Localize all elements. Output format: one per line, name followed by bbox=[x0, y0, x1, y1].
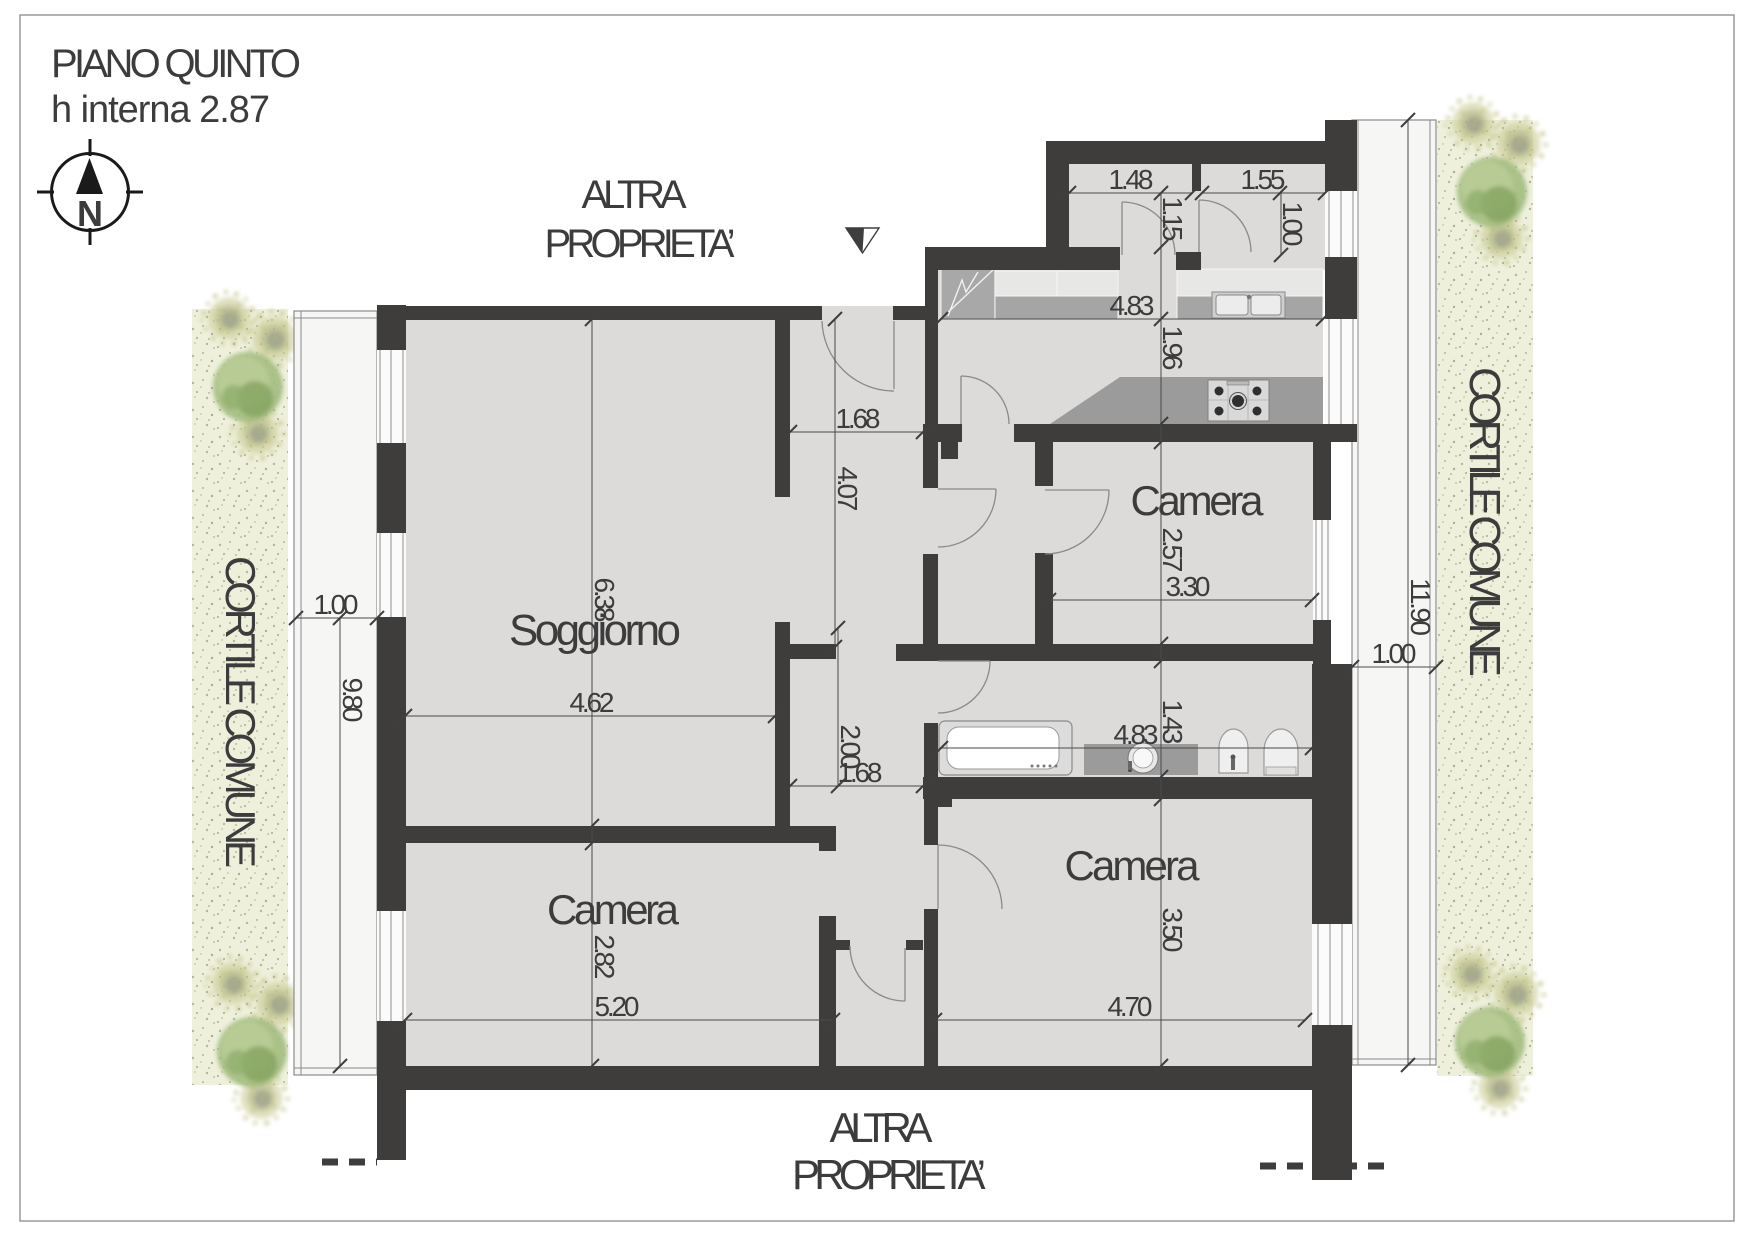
svg-text:4.62: 4.62 bbox=[570, 687, 615, 718]
svg-text:Camera: Camera bbox=[547, 886, 680, 933]
svg-text:1.55: 1.55 bbox=[1241, 164, 1286, 195]
svg-text:2.00: 2.00 bbox=[835, 725, 866, 770]
svg-text:1.68: 1.68 bbox=[836, 403, 881, 434]
svg-text:11.90: 11.90 bbox=[1405, 578, 1436, 636]
svg-text:4.70: 4.70 bbox=[1108, 991, 1153, 1022]
svg-text:ALTRA: ALTRA bbox=[830, 1104, 933, 1151]
svg-text:N: N bbox=[77, 193, 103, 234]
svg-text:h interna 2.87: h interna 2.87 bbox=[51, 89, 270, 131]
svg-text:1.43: 1.43 bbox=[1157, 700, 1188, 745]
svg-text:Camera: Camera bbox=[1131, 477, 1265, 524]
svg-text:2.82: 2.82 bbox=[589, 935, 620, 980]
svg-text:CORTILE COMUNE: CORTILE COMUNE bbox=[217, 556, 264, 868]
svg-text:1.96: 1.96 bbox=[1157, 326, 1188, 371]
svg-text:PROPRIETA’: PROPRIETA’ bbox=[545, 222, 736, 266]
svg-text:1.48: 1.48 bbox=[1109, 164, 1154, 195]
svg-text:PROPRIETA’: PROPRIETA’ bbox=[792, 1151, 986, 1198]
svg-text:1.00: 1.00 bbox=[314, 589, 359, 620]
svg-text:4.83: 4.83 bbox=[1114, 719, 1159, 750]
svg-text:6.38: 6.38 bbox=[589, 578, 620, 623]
svg-text:5.20: 5.20 bbox=[595, 991, 640, 1022]
svg-text:CORTILE COMUNE: CORTILE COMUNE bbox=[1460, 367, 1509, 677]
svg-text:1.00: 1.00 bbox=[1372, 638, 1417, 669]
svg-text:PIANO QUINTO: PIANO QUINTO bbox=[51, 42, 301, 86]
svg-text:1.15: 1.15 bbox=[1157, 197, 1188, 242]
svg-text:ALTRA: ALTRA bbox=[582, 173, 687, 217]
svg-text:4.83: 4.83 bbox=[1110, 290, 1155, 321]
svg-text:3.50: 3.50 bbox=[1157, 908, 1188, 953]
svg-text:4.07: 4.07 bbox=[832, 467, 863, 512]
svg-text:3.30: 3.30 bbox=[1166, 571, 1211, 602]
svg-text:Camera: Camera bbox=[1065, 842, 1201, 889]
svg-text:9.80: 9.80 bbox=[337, 678, 368, 723]
svg-text:1.00: 1.00 bbox=[1277, 202, 1308, 247]
svg-text:2.57: 2.57 bbox=[1157, 528, 1188, 573]
